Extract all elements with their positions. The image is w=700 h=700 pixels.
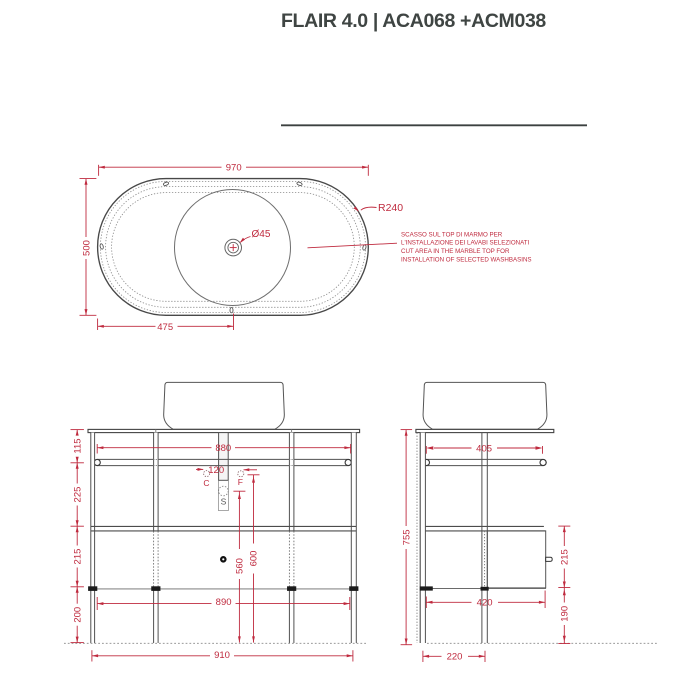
svg-text:420: 420 [477,598,493,609]
svg-text:215: 215 [73,549,84,565]
svg-text:R240: R240 [378,202,403,214]
svg-text:INSTALLATION OF SELECTED WASHB: INSTALLATION OF SELECTED WASHBASINS [401,257,532,264]
svg-text:Ø45: Ø45 [252,229,271,240]
svg-text:F: F [238,477,243,487]
svg-text:215: 215 [560,549,571,565]
svg-text:560: 560 [235,558,246,574]
svg-text:600: 600 [249,551,260,567]
svg-text:475: 475 [157,322,173,333]
svg-text:C: C [203,478,209,488]
svg-text:L'INSTALLAZIONE DEI LAVABI SEL: L'INSTALLAZIONE DEI LAVABI SELEZIONATI [401,240,530,247]
svg-text:CUT AREA IN THE MARBLE TOP FOR: CUT AREA IN THE MARBLE TOP FOR [401,248,510,255]
svg-text:500: 500 [81,240,92,256]
svg-text:190: 190 [560,606,571,622]
svg-text:SCASSO SUL TOP DI MARMO PER: SCASSO SUL TOP DI MARMO PER [401,231,503,238]
svg-text:890: 890 [216,597,232,608]
svg-text:970: 970 [226,163,242,174]
svg-text:755: 755 [401,529,412,545]
svg-text:405: 405 [476,443,492,454]
svg-text:225: 225 [73,487,84,503]
svg-text:910: 910 [214,650,230,661]
svg-text:120: 120 [208,465,224,476]
svg-text:FLAIR 4.0 | ACA068 +ACM038: FLAIR 4.0 | ACA068 +ACM038 [281,10,546,32]
svg-text:S: S [221,497,227,507]
svg-text:880: 880 [215,443,231,454]
svg-text:220: 220 [447,652,463,663]
svg-text:200: 200 [73,607,84,623]
svg-text:115: 115 [73,438,84,453]
